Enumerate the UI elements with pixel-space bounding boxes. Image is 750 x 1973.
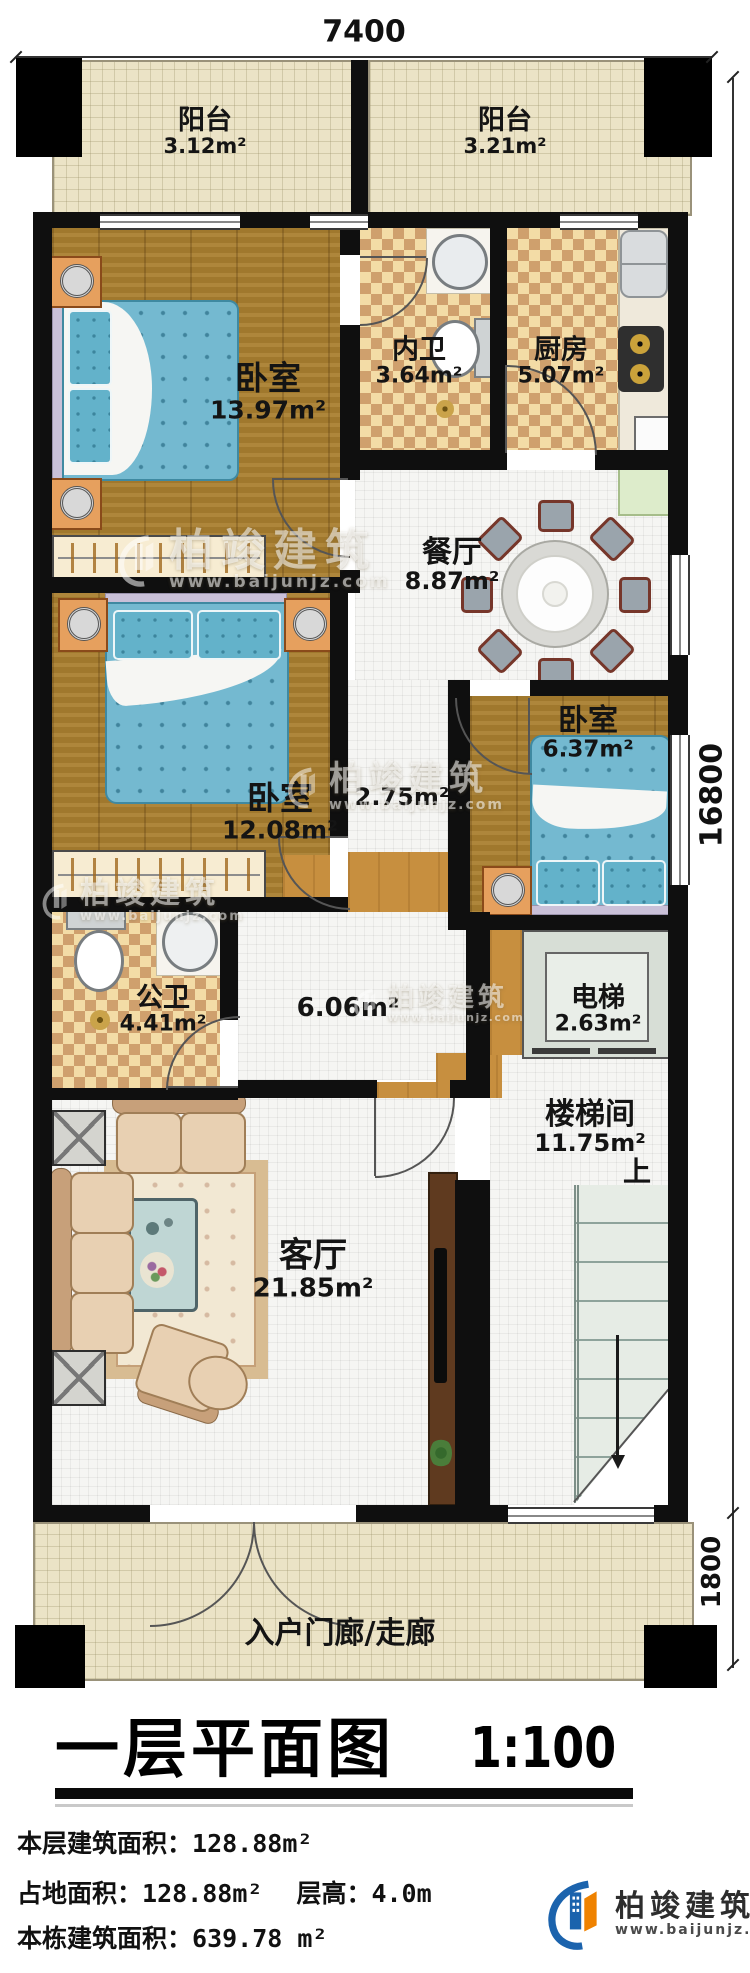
room-label-dining: 餐厅 8.87m²: [405, 537, 500, 595]
ensuite-floor-drain-icon: [436, 400, 454, 418]
end-table-lamp: [52, 1110, 106, 1166]
room-area: 8.87m²: [405, 569, 500, 595]
wall-bedroom2-bottom: [33, 897, 348, 912]
wall-stairwell-left-upper: [466, 912, 490, 1098]
sofa-cushion: [70, 1232, 134, 1294]
room-area: 13.97m²: [210, 396, 326, 423]
dimension-right-main-value: 16800: [695, 743, 730, 847]
flower-plate-icon: [140, 1252, 174, 1288]
ensuite-window: [310, 214, 368, 230]
stat-value: 128.88m²: [142, 1879, 262, 1908]
room-name: 内卫: [376, 336, 463, 365]
room-label-porch: 入户门廊/走廊: [245, 1618, 436, 1650]
stair-direction-arrow: [616, 1335, 619, 1455]
room-label-bedroom-2: 卧室 12.08m²: [222, 781, 338, 844]
sofa-cushion: [180, 1112, 246, 1174]
room-area: 3.21m²: [464, 135, 547, 158]
room-name: 卧室: [222, 781, 338, 817]
dining-chair: [619, 577, 651, 613]
wall-ensuite-bottom: [340, 450, 507, 470]
room-area: 6.06m²: [297, 994, 400, 1022]
dining-window: [670, 555, 690, 655]
room-area: 21.85m²: [253, 1274, 374, 1302]
floor-plan-page: 阳台 3.12m² 阳台 3.21m² 卧室 13.97m² 内卫 3.64m²…: [0, 0, 750, 1973]
room-label-elevator: 电梯 2.63m²: [555, 984, 642, 1037]
brand-logo-icon: [543, 1878, 605, 1950]
bath-floor-drain-icon: [90, 1010, 110, 1030]
elevator-door-line: [598, 1048, 656, 1054]
dimension-right-porch-value: 1800: [697, 1536, 727, 1608]
room-name: 卧室: [543, 705, 634, 737]
stove-burner-icon: [630, 334, 650, 354]
bed3-pillow: [602, 860, 666, 906]
footer-land-area: 占地面积：128.88m²层高：4.0m: [17, 1874, 432, 1910]
room-area: 2.75m²: [355, 785, 450, 811]
room-area: 12.08m²: [222, 816, 338, 843]
bath-toilet-tank: [66, 910, 126, 930]
room-label-public-bath: 公卫 4.41m²: [120, 984, 207, 1037]
end-table-lamp: [52, 1350, 106, 1406]
stat-label: 本栋建筑面积：: [17, 1924, 192, 1953]
drawing-title: 一层平面图: [55, 1698, 395, 1790]
stove-burner-icon: [630, 364, 650, 384]
dimension-line-top: [16, 56, 712, 58]
bath-basin-icon: [162, 912, 218, 972]
wall-bottom: [33, 1505, 150, 1522]
dimension-top-value: 7400: [322, 15, 406, 50]
room-area: 11.75m²: [534, 1131, 645, 1157]
sofa-cushion: [70, 1292, 134, 1354]
room-area: 4.41m²: [120, 1013, 207, 1037]
room-name: 厨房: [518, 336, 605, 365]
bedroom3-window: [670, 735, 690, 885]
stat-value: 128.88m²: [192, 1829, 312, 1858]
room-label-balcony-right: 阳台 3.21m²: [464, 106, 547, 158]
bedroom1-window: [100, 214, 240, 230]
bed1-nightstand: [50, 478, 102, 530]
room-label-living: 客厅 21.85m²: [253, 1238, 374, 1303]
wall-hall-living: [238, 1080, 377, 1098]
bed2-pillow: [113, 610, 193, 660]
dining-chair: [538, 500, 574, 532]
kitchen-sink-icon: [620, 230, 668, 298]
wall-bedroom1-right: [340, 228, 360, 255]
bath-door-leaf: [166, 1086, 238, 1088]
plant-icon: [430, 1438, 452, 1468]
stat-label: 层高：: [296, 1879, 371, 1908]
corner-column: [644, 1625, 717, 1688]
sofa-cushion: [116, 1112, 182, 1174]
bed2-pillow: [197, 610, 281, 660]
room-label-bedroom-1: 卧室 13.97m²: [210, 361, 326, 424]
kitchen-window: [560, 214, 638, 230]
room-name: 入户门廊/走廊: [245, 1618, 436, 1650]
wall-bottom: [356, 1505, 508, 1522]
stat-label: 本层建筑面积：: [17, 1829, 192, 1858]
wall-bottom: [654, 1505, 688, 1522]
room-label-stairwell: 楼梯间 11.75m²: [534, 1099, 645, 1157]
elevator-door-line: [532, 1048, 590, 1054]
corridor-area-label: 2.75m²: [355, 785, 450, 811]
bed1-nightstand: [50, 256, 102, 308]
brand-url: www.baijunjz.com: [615, 1923, 750, 1938]
kitchen-door-leaf: [505, 365, 507, 453]
room-label-balcony-left: 阳台 3.12m²: [164, 106, 247, 158]
stat-value: 639.78 m²: [192, 1924, 327, 1953]
tv-icon: [434, 1248, 447, 1383]
teacup-icon: [164, 1218, 173, 1227]
stat-value: 4.0m: [371, 1879, 431, 1908]
bath-toilet-icon: [74, 930, 124, 992]
room-label-kitchen: 厨房 5.07m²: [518, 336, 605, 389]
room-label-ensuite: 内卫 3.64m²: [376, 336, 463, 389]
elevator-shaft-strip: [490, 930, 522, 1055]
corner-column: [15, 1625, 85, 1688]
stat-label: 占地面积：: [17, 1879, 142, 1908]
corner-column: [16, 57, 82, 157]
teapot-icon: [146, 1222, 159, 1235]
footer-floor-area: 本层建筑面积：128.88m²: [17, 1824, 312, 1860]
brand-logo: 柏竣建筑 www.baijunjz.com: [543, 1878, 750, 1950]
room-name: 电梯: [555, 984, 642, 1013]
living-door-leaf: [374, 1098, 376, 1176]
bed1-pillow: [68, 310, 112, 386]
bed2-nightstand: [58, 598, 108, 652]
ensuite-door-leaf: [360, 256, 426, 258]
wall-bath-right: [220, 912, 238, 1020]
wall-bedroom1-2-divider: [33, 577, 355, 593]
title-underline: [55, 1788, 633, 1799]
room-name: 阳台: [464, 106, 547, 135]
room-name: 楼梯间: [534, 1099, 645, 1131]
title-underline-thin: [55, 1804, 633, 1807]
wall-elevator-top: [448, 915, 688, 930]
room-name: 公卫: [120, 984, 207, 1013]
room-area: 6.37m²: [543, 738, 634, 763]
drawing-scale: 1:100: [470, 1716, 616, 1781]
hall-area-label: 6.06m²: [297, 994, 400, 1022]
wall-left: [33, 212, 52, 1522]
porch-floor: [33, 1522, 694, 1681]
sofa-cushion: [70, 1172, 134, 1234]
room-area: 2.63m²: [555, 1013, 642, 1037]
corner-column: [644, 57, 712, 157]
footer-building-area: 本栋建筑面积：639.78 m²: [17, 1919, 327, 1955]
brand-name: 柏竣建筑: [615, 1890, 750, 1923]
bedroom2-wardrobe: [52, 850, 266, 899]
room-label-bedroom-3: 卧室 6.37m²: [543, 705, 634, 762]
bed2-nightstand: [284, 598, 334, 652]
bedroom1-door-leaf: [272, 478, 348, 480]
room-name: 卧室: [210, 361, 326, 397]
stairwell-window: [508, 1507, 654, 1524]
balcony-divider-wall: [351, 60, 368, 212]
room-area: 3.12m²: [164, 135, 247, 158]
ensuite-basin-icon: [432, 234, 488, 290]
bedroom1-wardrobe: [52, 535, 266, 581]
room-area: 3.64m²: [376, 365, 463, 389]
bed1-pillow: [68, 388, 112, 464]
dimension-line-right: [732, 78, 734, 1668]
room-name: 阳台: [164, 106, 247, 135]
up-text: 上: [623, 1155, 651, 1188]
room-area: 5.07m²: [518, 365, 605, 389]
bedroom3-door-leaf: [528, 698, 530, 773]
dining-table-hub: [542, 581, 568, 607]
bed3-nightstand: [482, 866, 532, 916]
bed3-pillow: [536, 860, 600, 906]
wall-stairwell-left-lower: [455, 1180, 490, 1505]
stair-up-label: 上: [623, 1157, 651, 1187]
wall-kitchen-bottom: [595, 450, 688, 470]
room-name: 餐厅: [405, 537, 500, 569]
wall-bedroom3-top: [530, 680, 688, 696]
bed3-headboard: [530, 905, 670, 915]
sofa-back-left: [50, 1168, 72, 1355]
room-name: 客厅: [253, 1238, 374, 1275]
stair-arrow-head: [611, 1455, 625, 1469]
